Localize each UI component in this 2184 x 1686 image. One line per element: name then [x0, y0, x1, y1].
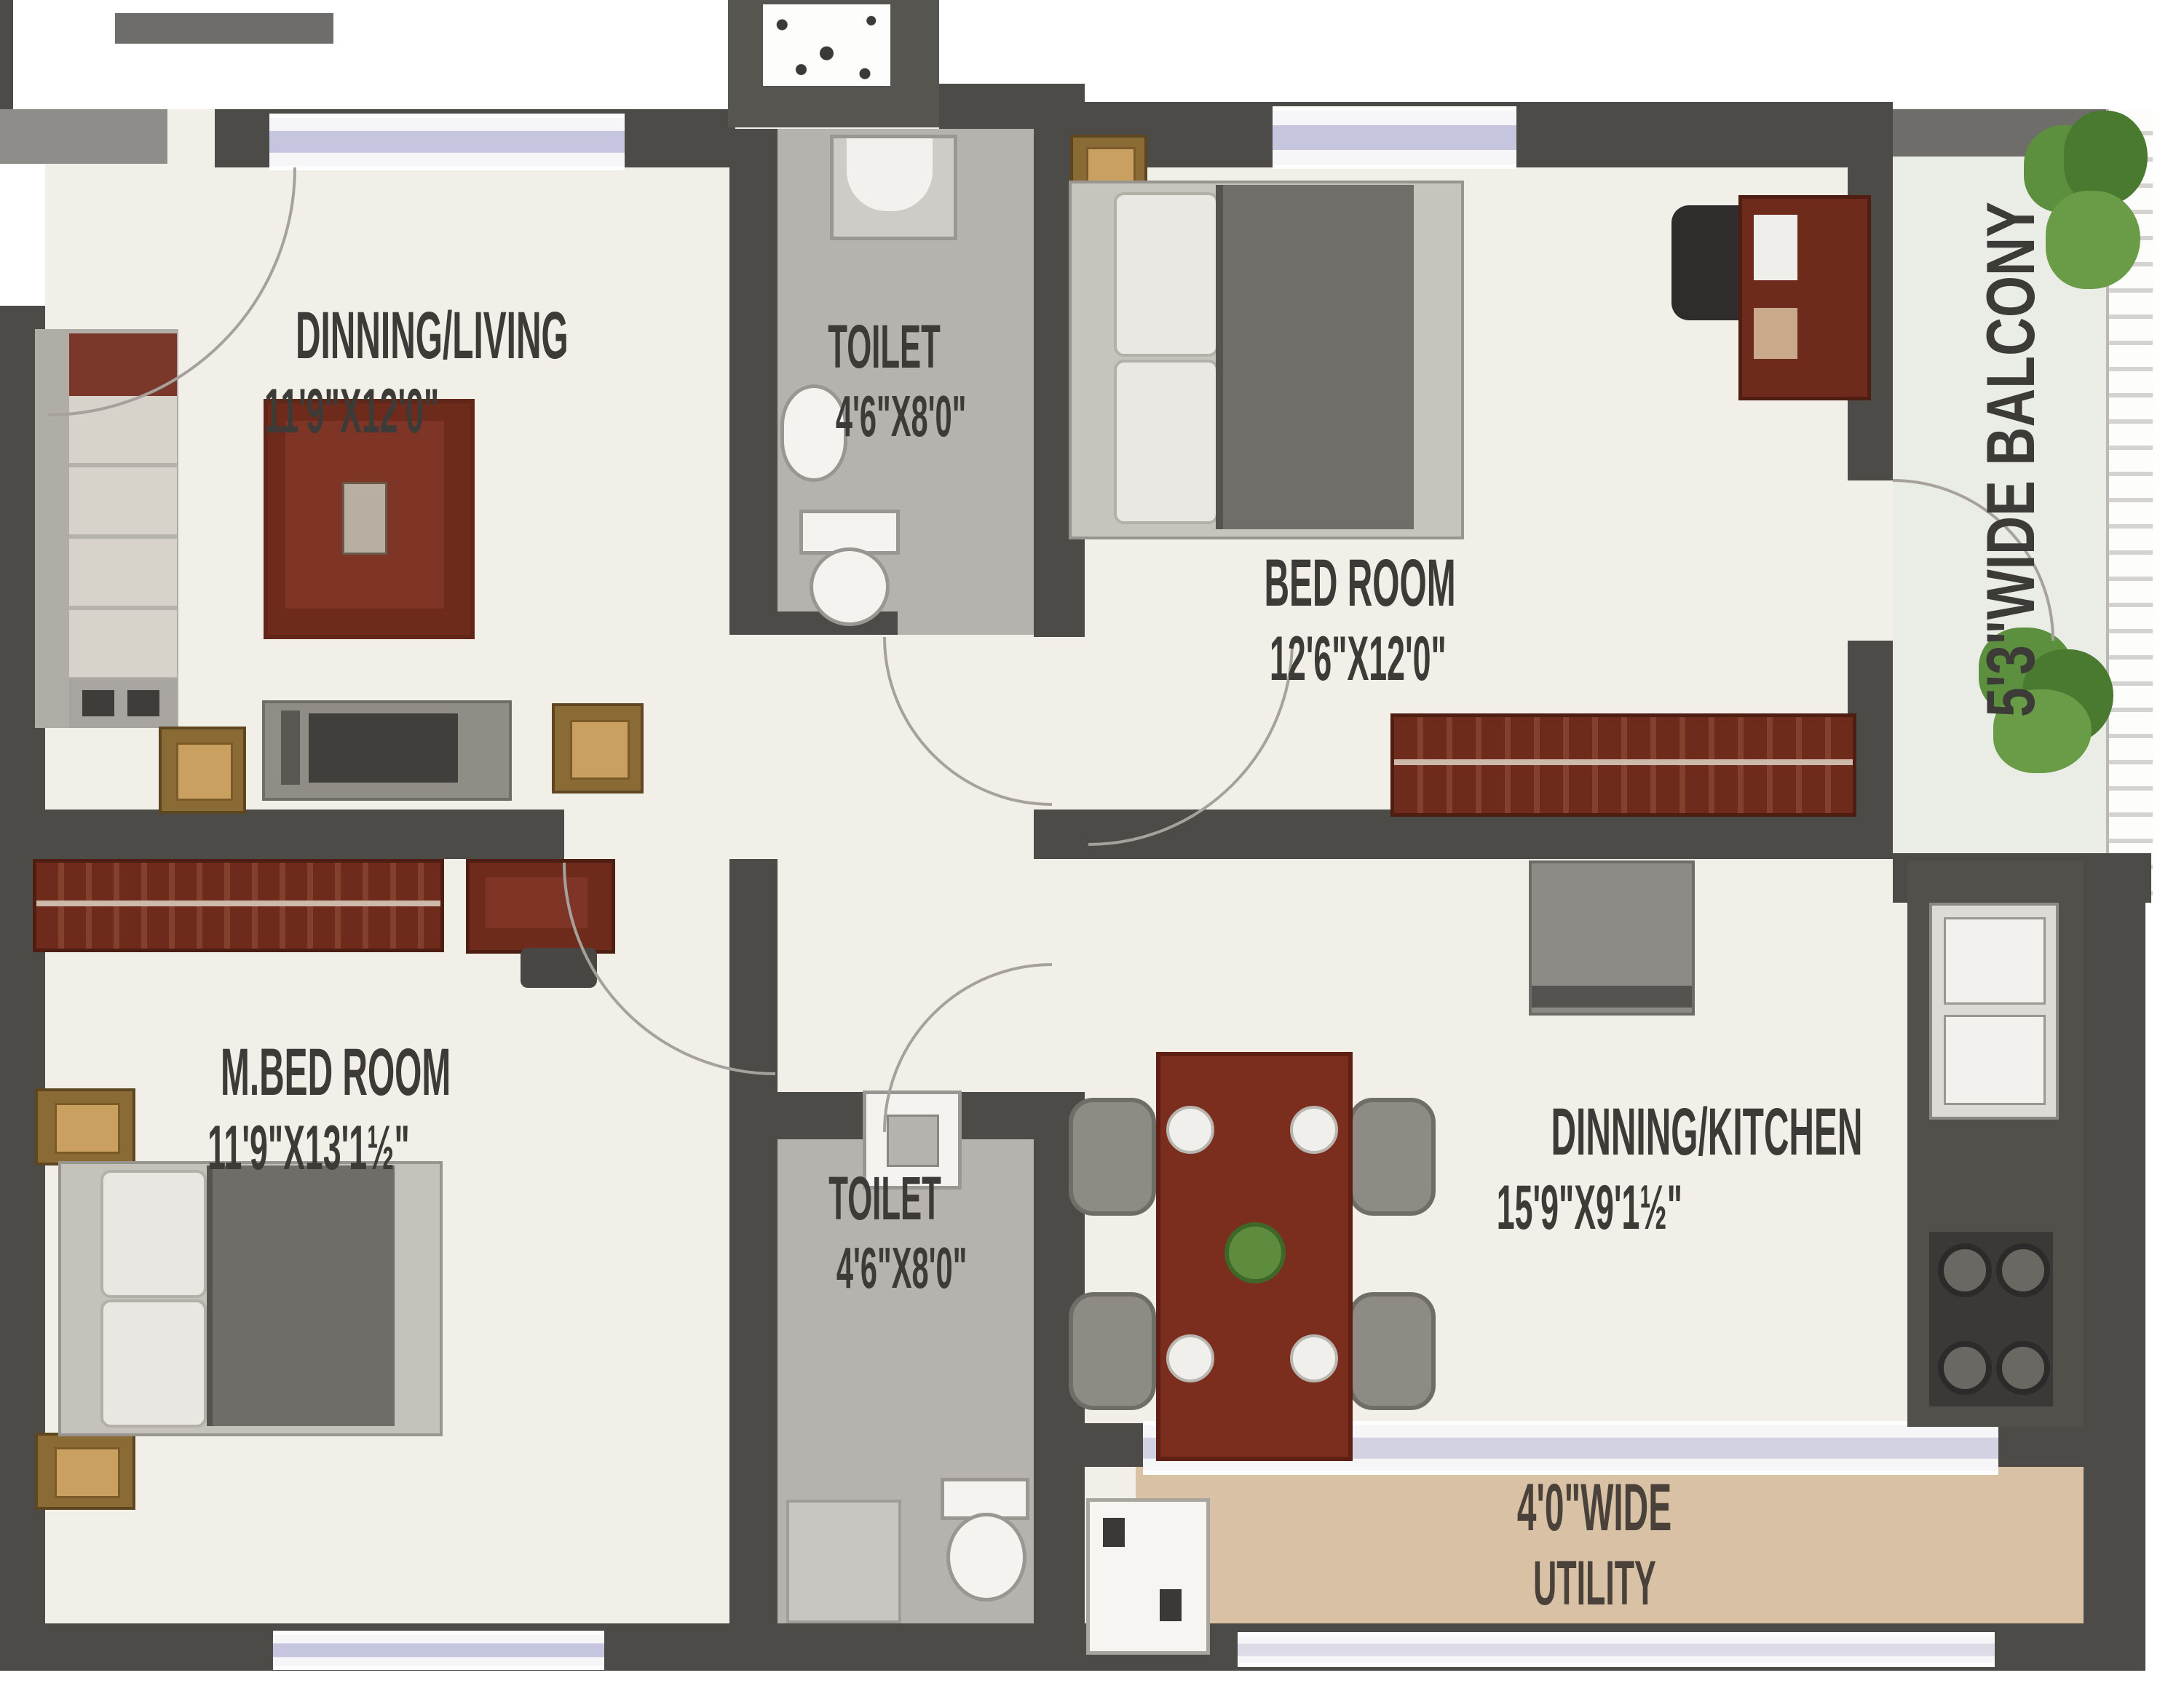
door-swing-arcs: [0, 0, 2184, 1686]
label-toilet2: TOILET 4'6"X8'0": [776, 1163, 994, 1303]
label-balcony: 5'3"WIDE BALCONY: [1971, 280, 2051, 790]
label-toilet1: TOILET 4'6"X8'0": [775, 312, 994, 451]
floor-plan: DINNING/LIVING 11'9"X12'0" TOILET 4'6"X8…: [0, 0, 2184, 1686]
label-bedroom: BED ROOM 12'6"X12'0": [1176, 545, 1540, 696]
label-utility: 4'0"WIDE UTILITY: [1412, 1469, 1776, 1620]
label-living: DINNING/LIVING 11'9"X12'0": [170, 297, 534, 448]
label-mbedroom: M.BED ROOM 11'9"X13'1½": [114, 1034, 478, 1185]
label-kitchen: DINNING/KITCHEN 15'9"X9'1½": [1407, 1093, 1771, 1245]
